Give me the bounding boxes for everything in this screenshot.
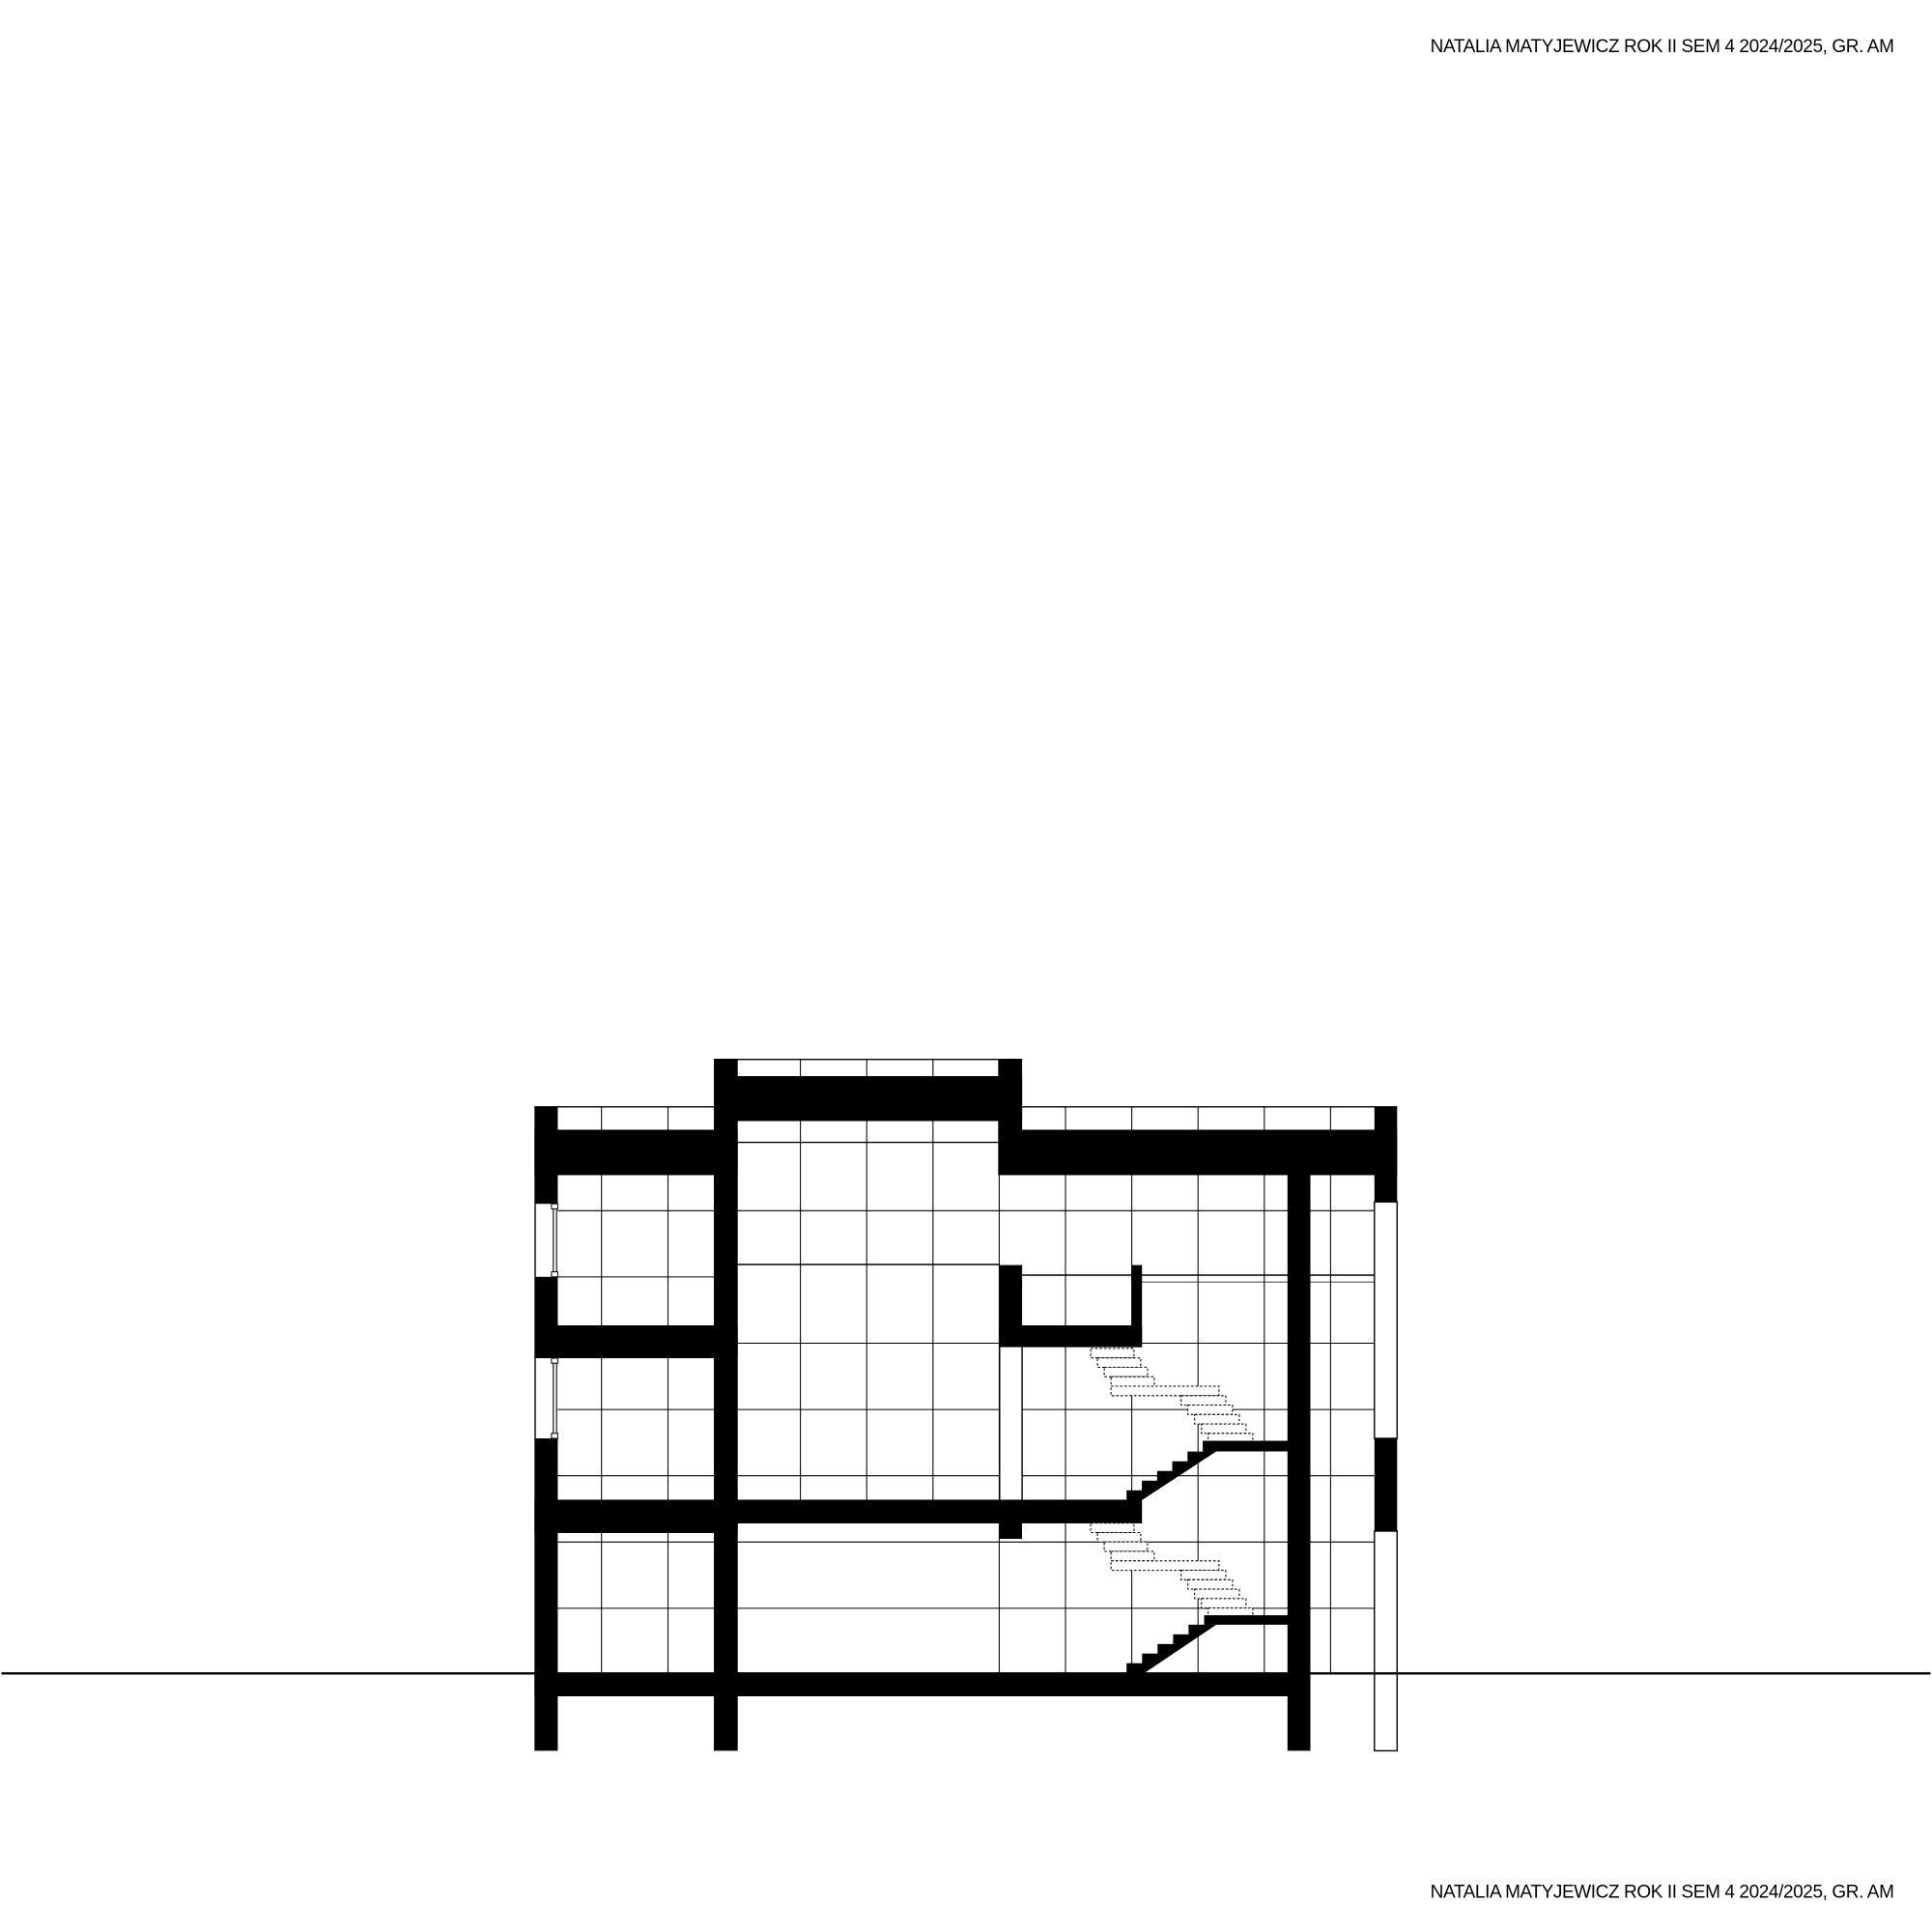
svg-text:NATALIA MATYJEWICZ ROK II SEM: NATALIA MATYJEWICZ ROK II SEM 4 2024/202…: [1431, 1883, 1894, 1903]
svg-text:NATALIA MATYJEWICZ ROK II SEM: NATALIA MATYJEWICZ ROK II SEM 4 2024/202…: [1431, 37, 1894, 57]
